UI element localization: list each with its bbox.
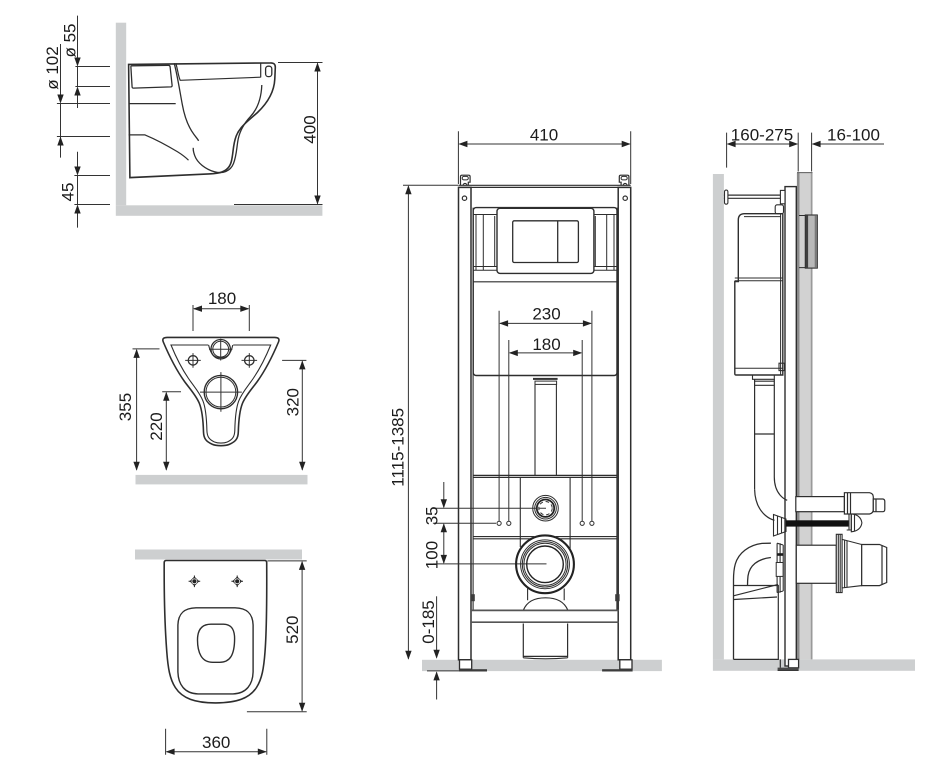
svg-text:ø 102: ø 102 [43,46,62,89]
svg-text:ø 55: ø 55 [61,23,80,57]
svg-text:180: 180 [532,335,560,354]
svg-text:220: 220 [147,412,166,440]
svg-text:230: 230 [532,305,560,324]
svg-text:0-185: 0-185 [419,600,438,643]
svg-text:320: 320 [283,388,302,416]
svg-text:1115-1385: 1115-1385 [389,408,408,487]
svg-text:100: 100 [423,541,442,569]
svg-text:355: 355 [116,393,135,421]
svg-text:360: 360 [202,733,230,752]
svg-text:410: 410 [530,126,558,145]
svg-text:180: 180 [208,289,236,308]
svg-text:400: 400 [301,115,320,143]
svg-text:45: 45 [59,183,78,202]
svg-text:160-275: 160-275 [731,126,793,145]
svg-text:16-100: 16-100 [827,126,880,145]
svg-text:520: 520 [283,616,302,644]
svg-text:35: 35 [423,506,442,525]
